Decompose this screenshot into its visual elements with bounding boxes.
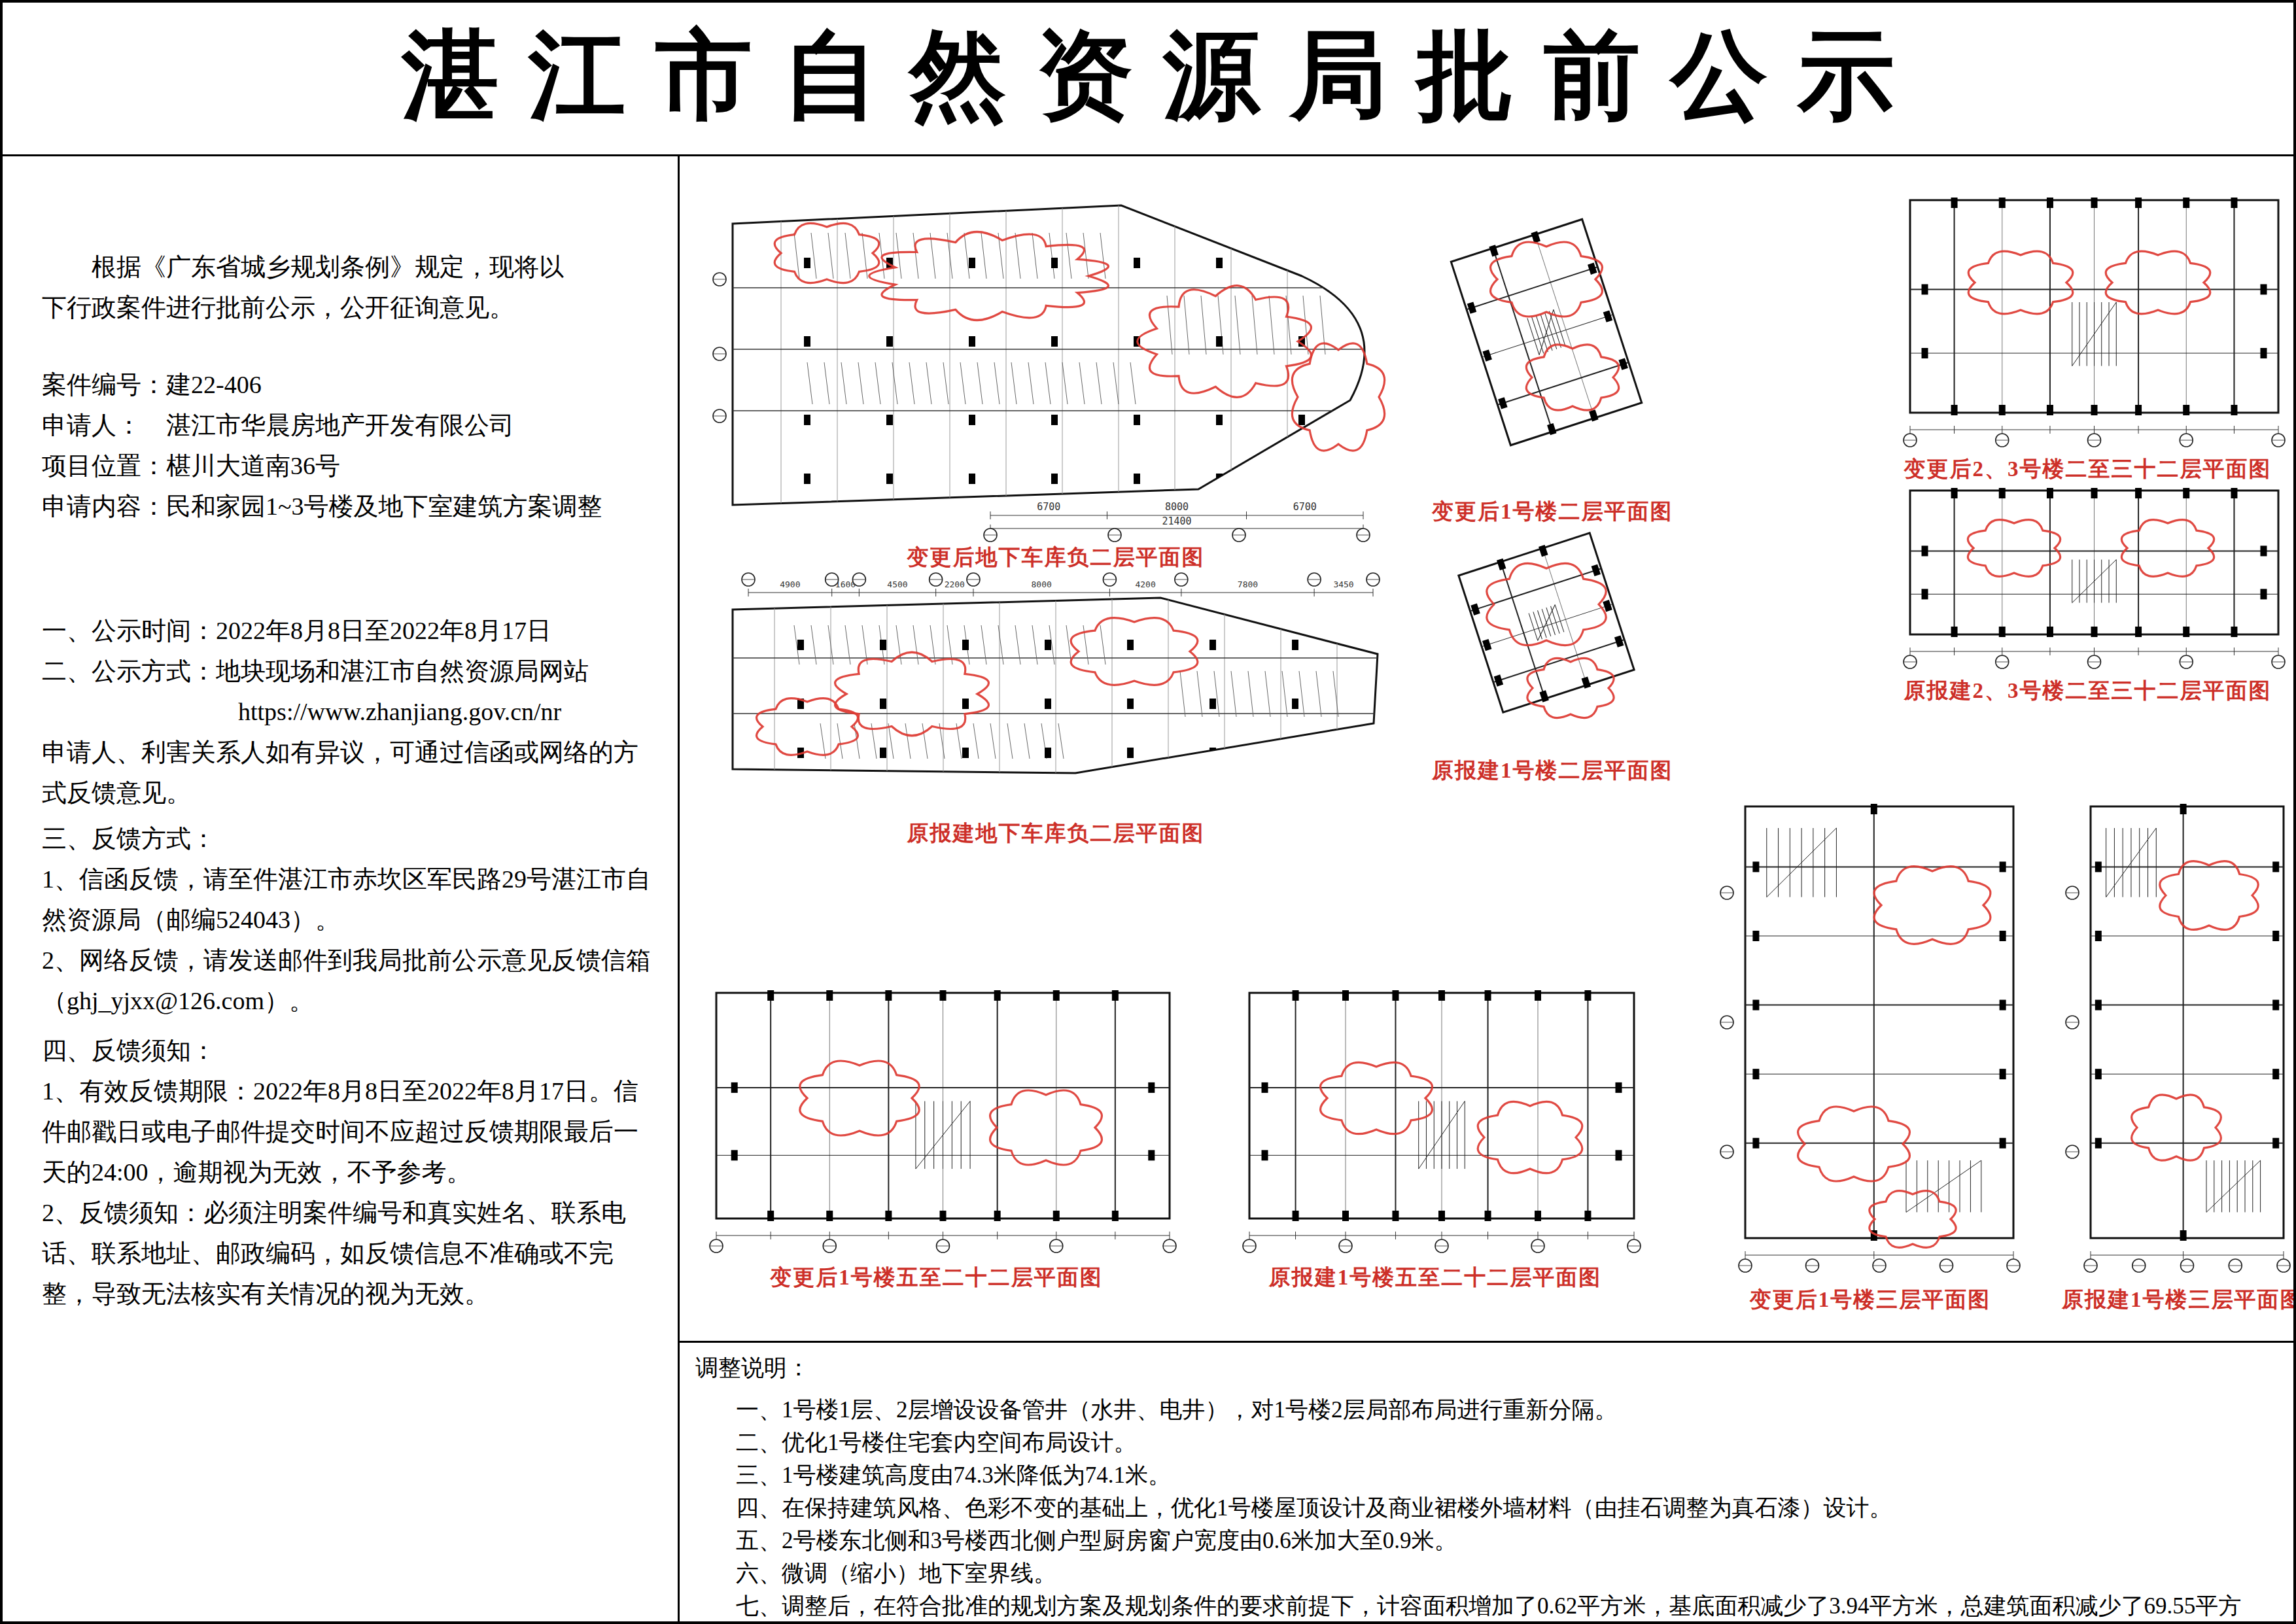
title-bar: 湛江市自然资源局批前公示 — [3, 3, 2293, 156]
floorplan-changed-tower1-floors5-22: 变更后1号楼五至二十二层平面图 — [693, 977, 1180, 1292]
svg-text:6700: 6700 — [1037, 501, 1060, 513]
application-content: 申请内容：民和家园1~3号楼及地下室建筑方案调整 — [42, 486, 652, 527]
floorplan-changed-tower1-floor3: 变更后1号楼三层平面图 — [1716, 791, 2024, 1315]
item-feedback-letter: 1、信函反馈，请至件湛江市赤坎区军民路29号湛江市自然资源局（邮编524043）… — [42, 859, 652, 940]
floorplan-caption: 变更后1号楼三层平面图 — [1716, 1285, 2024, 1315]
floorplan-caption: 原报建地下车库负二层平面图 — [709, 819, 1402, 848]
svg-text:8000: 8000 — [1165, 501, 1189, 513]
svg-text:6700: 6700 — [1293, 501, 1317, 513]
svg-text:3450: 3450 — [1333, 579, 1353, 589]
floorplan-drawing — [2062, 791, 2294, 1275]
floorplan-changed-tower23-floors2-32: 变更后2、3号楼二至三十二层平面图 — [1887, 184, 2289, 484]
note-item: 五、2号楼东北侧和3号楼西北侧户型厨房窗户宽度由0.6米加大至0.9米。 — [736, 1525, 2274, 1557]
note-item: 四、在保持建筑风格、色彩不变的基础上，优化1号楼屋顶设计及商业裙楼外墙材料（由挂… — [736, 1492, 2274, 1525]
floorplan-caption: 变更后地下车库负二层平面图 — [709, 543, 1402, 572]
svg-text:4900: 4900 — [780, 579, 800, 589]
floorplan-drawing — [1226, 977, 1644, 1255]
floorplan-drawing — [693, 977, 1180, 1255]
intro-paragraph: 根据《广东省城乡规划条例》规定，现将以下行政案件进行批前公示，公开征询意见。 — [42, 247, 572, 328]
floorplan-drawing: 67008000670021400 — [709, 178, 1402, 538]
floorplan-original-tower1-floor3: 原报建1号楼三层平面图 — [2062, 791, 2294, 1315]
svg-text:2200: 2200 — [945, 579, 965, 589]
item-publicity-method: 二、公示方式：地块现场和湛江市自然资源局网站 — [42, 651, 652, 691]
item-objection-note: 申请人、利害关系人如有异议，可通过信函或网络的方式反馈意见。 — [42, 732, 652, 813]
case-number-value: 建22-406 — [166, 371, 262, 398]
item-feedback-email: 2、网络反馈，请发送邮件到我局批前公示意见反馈信箱（ghj_yjxx@126.c… — [42, 940, 652, 1021]
floorplan-changed-basement-b2: 67008000670021400 变更后地下车库负二层平面图 — [709, 178, 1402, 572]
floorplan-caption: 原报建1号楼三层平面图 — [2062, 1285, 2294, 1315]
note-item: 六、微调（缩小）地下室界线。 — [736, 1557, 2274, 1590]
application-content-value: 民和家园1~3号楼及地下室建筑方案调整 — [166, 492, 602, 520]
notes-heading: 调整说明： — [695, 1352, 2274, 1385]
floorplan-caption: 原报建1号楼二层平面图 — [1432, 756, 1661, 786]
floorplan-drawing: 49001600450022008000420078003450 — [709, 573, 1402, 814]
note-item: 一、1号楼1层、2层增设设备管井（水井、电井），对1号楼2层局部布局进行重新分隔… — [736, 1394, 2274, 1426]
floorplan-drawing — [1887, 475, 2289, 671]
floorplan-drawing — [1432, 178, 1661, 491]
floorplan-drawing — [1887, 184, 2289, 449]
applicant-label: 申请人： — [42, 405, 166, 445]
floorplan-caption: 变更后1号楼五至二十二层平面图 — [693, 1263, 1180, 1292]
note-item: 七、调整后，在符合批准的规划方案及规划条件的要求前提下，计容面积增加了0.62平… — [736, 1590, 2274, 1621]
case-number: 案件编号：建22-406 — [42, 364, 652, 405]
floorplan-drawing — [1432, 500, 1661, 750]
item-feedback-requirements: 2、反馈须知：必须注明案件编号和真实姓名、联系电话、联系地址、邮政编码，如反馈信… — [42, 1192, 652, 1314]
svg-text:8000: 8000 — [1032, 579, 1052, 589]
adjustment-notes: 调整说明： 一、1号楼1层、2层增设设备管井（水井、电井），对1号楼2层局部布局… — [680, 1341, 2293, 1621]
svg-text:4200: 4200 — [1135, 579, 1155, 589]
applicant-value: 湛江市华晨房地产开发有限公司 — [166, 411, 514, 439]
floorplan-original-basement-b2: 49001600450022008000420078003450 原报建地下车库… — [709, 573, 1402, 848]
floorplan-caption: 原报建2、3号楼二至三十二层平面图 — [1887, 676, 2289, 706]
public-notice-page: 湛江市自然资源局批前公示 根据《广东省城乡规划条例》规定，现将以下行政案件进行批… — [0, 0, 2296, 1624]
item-feedback-notice-heading: 四、反馈须知： — [42, 1030, 652, 1071]
application-content-label: 申请内容： — [42, 486, 166, 527]
applicant: 申请人：湛江市华晨房地产开发有限公司 — [42, 405, 652, 445]
item-feedback-method-heading: 三、反馈方式： — [42, 818, 652, 859]
project-location-value: 椹川大道南36号 — [166, 452, 340, 479]
note-item: 三、1号楼建筑高度由74.3米降低为74.1米。 — [736, 1459, 2274, 1492]
svg-text:7800: 7800 — [1238, 579, 1258, 589]
page-title: 湛江市自然资源局批前公示 — [3, 3, 2293, 148]
floorplan-caption: 原报建1号楼五至二十二层平面图 — [1226, 1263, 1644, 1292]
item-website-url: https://www.zhanjiang.gov.cn/nr — [238, 691, 652, 732]
item-publicity-time: 一、公示时间：2022年8月8日至2022年8月17日 — [42, 610, 652, 651]
project-location-label: 项目位置： — [42, 445, 166, 486]
item-feedback-deadline: 1、有效反馈期限：2022年8月8日至2022年8月17日。信件邮戳日或电子邮件… — [42, 1071, 652, 1192]
svg-text:21400: 21400 — [1162, 515, 1191, 527]
case-number-label: 案件编号： — [42, 364, 166, 405]
floorplan-drawing — [1716, 791, 2024, 1275]
svg-text:4500: 4500 — [887, 579, 907, 589]
floorplan-original-tower1-floors5-22: 原报建1号楼五至二十二层平面图 — [1226, 977, 1644, 1292]
floorplan-changed-tower1-floor2: 变更后1号楼二层平面图 — [1432, 178, 1661, 527]
floorplan-original-tower23-floors2-32: 原报建2、3号楼二至三十二层平面图 — [1887, 475, 2289, 706]
left-panel: 根据《广东省城乡规划条例》规定，现将以下行政案件进行批前公示，公开征询意见。 案… — [3, 156, 680, 1621]
project-location: 项目位置：椹川大道南36号 — [42, 445, 652, 486]
note-item: 二、优化1号楼住宅套内空间布局设计。 — [736, 1426, 2274, 1459]
floorplan-original-tower1-floor2: 原报建1号楼二层平面图 — [1432, 500, 1661, 786]
